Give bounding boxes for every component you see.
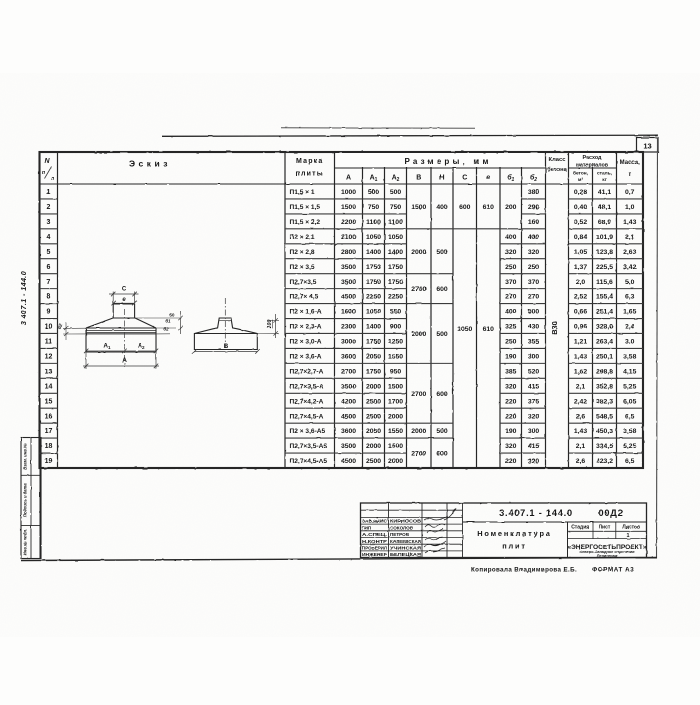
svg-text:160: 160	[528, 219, 540, 226]
svg-text:0,7: 0,7	[625, 189, 635, 196]
svg-text:3600: 3600	[341, 353, 356, 360]
svg-text:П2,7×3,5: П2,7×3,5	[290, 279, 317, 286]
svg-text:250: 250	[505, 264, 517, 271]
svg-text:610: 610	[483, 204, 495, 211]
svg-text:251,4: 251,4	[596, 309, 613, 316]
svg-text:2000: 2000	[411, 428, 426, 435]
svg-text:41,1: 41,1	[598, 189, 611, 196]
svg-text:500: 500	[436, 428, 448, 435]
svg-text:2,1: 2,1	[576, 443, 586, 450]
svg-text:2,42: 2,42	[574, 398, 587, 405]
svg-text:0,40: 0,40	[574, 204, 587, 211]
svg-text:1,05: 1,05	[574, 249, 587, 256]
svg-text:1: 1	[47, 189, 51, 196]
svg-text:П1,5 × 2,2: П1,5 × 2,2	[290, 219, 321, 226]
svg-text:2800: 2800	[341, 249, 356, 256]
svg-text:2000: 2000	[366, 383, 381, 390]
svg-text:3500: 3500	[341, 279, 356, 286]
svg-text:1,0: 1,0	[625, 204, 635, 211]
svg-text:1,43: 1,43	[574, 353, 587, 360]
svg-text:СОКОЛОВ: СОКОЛОВ	[390, 525, 414, 530]
svg-text:В30: В30	[550, 321, 559, 335]
svg-text:ПРОВЕРИЛ: ПРОВЕРИЛ	[362, 546, 387, 551]
svg-text:610: 610	[483, 326, 495, 333]
svg-text:П2 × 3,0-А: П2 × 3,0-А	[290, 339, 322, 346]
svg-text:548,5: 548,5	[596, 413, 613, 420]
svg-text:3,0: 3,0	[625, 339, 635, 346]
svg-text:123,8: 123,8	[596, 249, 613, 256]
svg-text:Н: Н	[439, 175, 444, 182]
svg-text:7: 7	[47, 279, 51, 286]
svg-text:500: 500	[436, 331, 448, 338]
svg-text:2300: 2300	[341, 324, 356, 331]
svg-text:Н.КОНТР: Н.КОНТР	[362, 539, 387, 544]
svg-text:6: 6	[47, 264, 51, 271]
svg-text:320: 320	[528, 249, 540, 256]
svg-text:400: 400	[505, 309, 517, 316]
svg-text:2,0: 2,0	[576, 279, 586, 286]
svg-text:1550: 1550	[388, 428, 403, 435]
svg-text:БЕЛЕЦКАЯ: БЕЛЕЦКАЯ	[390, 552, 421, 557]
svg-text:В: В	[416, 175, 421, 182]
svg-text:400: 400	[505, 234, 517, 241]
svg-text:155,4: 155,4	[596, 294, 613, 301]
svg-text:250: 250	[528, 264, 540, 271]
svg-text:16: 16	[45, 413, 53, 420]
svg-text:сталь,: сталь,	[597, 172, 613, 177]
svg-text:750: 750	[368, 204, 380, 211]
svg-text:1400: 1400	[366, 249, 381, 256]
svg-text:С: С	[122, 287, 127, 293]
svg-text:900: 900	[390, 324, 402, 331]
svg-text:Номенклатура: Номенклатура	[477, 529, 551, 538]
svg-text:2050: 2050	[366, 353, 381, 360]
svg-text:плит: плит	[502, 542, 527, 551]
svg-text:Расход: Расход	[583, 155, 603, 161]
svg-text:1050: 1050	[457, 326, 472, 333]
svg-text:1550: 1550	[388, 353, 403, 360]
svg-text:500: 500	[436, 249, 448, 256]
svg-text:300: 300	[528, 428, 540, 435]
svg-text:1,37: 1,37	[574, 264, 587, 271]
svg-text:6,5: 6,5	[625, 413, 635, 420]
svg-text:1500: 1500	[388, 443, 403, 450]
svg-text:П2,7×4,5-А: П2,7×4,5-А	[290, 413, 324, 420]
svg-text:300: 300	[528, 353, 540, 360]
svg-text:320: 320	[505, 443, 517, 450]
svg-text:500: 500	[390, 189, 402, 196]
svg-text:Класс: Класс	[549, 157, 567, 163]
svg-text:А: А	[122, 357, 127, 364]
svg-text:320: 320	[528, 458, 540, 465]
svg-text:2,63: 2,63	[623, 249, 636, 256]
svg-text:352,8: 352,8	[596, 383, 613, 390]
svg-text:320: 320	[505, 383, 517, 390]
svg-text:115,6: 115,6	[596, 279, 613, 286]
svg-text:2000: 2000	[388, 458, 403, 465]
svg-text:2500: 2500	[366, 458, 381, 465]
svg-text:П2,7×3,5-А5: П2,7×3,5-А5	[290, 443, 328, 450]
svg-text:0,84: 0,84	[574, 234, 587, 241]
svg-text:1050: 1050	[388, 234, 403, 241]
svg-text:1,62: 1,62	[574, 368, 587, 375]
svg-text:ПЕТРОВ: ПЕТРОВ	[390, 532, 410, 537]
svg-text:1250: 1250	[388, 339, 403, 346]
svg-text:ГИП: ГИП	[362, 525, 371, 530]
svg-text:1,43: 1,43	[574, 428, 587, 435]
svg-text:0,96: 0,96	[574, 324, 587, 331]
svg-text:Марка: Марка	[296, 158, 323, 165]
svg-text:1100: 1100	[388, 219, 403, 226]
svg-text:250: 250	[505, 339, 517, 346]
svg-text:1500: 1500	[388, 383, 403, 390]
svg-text:50: 50	[170, 313, 175, 318]
svg-text:ИНЖЕНЕР: ИНЖЕНЕР	[362, 552, 387, 557]
svg-text:0,28: 0,28	[574, 189, 587, 196]
svg-text:3,58: 3,58	[623, 428, 636, 435]
svg-text:430: 430	[528, 324, 540, 331]
svg-text:382,3: 382,3	[596, 398, 613, 405]
svg-text:1500: 1500	[341, 204, 356, 211]
svg-text:2,1: 2,1	[625, 234, 635, 241]
svg-text:С: С	[462, 175, 467, 182]
svg-text:Размеры, мм: Размеры, мм	[404, 157, 491, 166]
svg-text:1400: 1400	[366, 324, 381, 331]
svg-text:3,42: 3,42	[623, 264, 636, 271]
svg-text:П1,5 × 1,5: П1,5 × 1,5	[290, 204, 321, 211]
svg-text:2500: 2500	[366, 413, 381, 420]
svg-text:600: 600	[436, 391, 448, 398]
svg-text:П2 × 1,6-А: П2 × 1,6-А	[290, 309, 322, 316]
svg-text:3500: 3500	[341, 264, 356, 271]
svg-text:Подпись и дата: Подпись и дата	[23, 483, 28, 518]
svg-text:1750: 1750	[388, 279, 403, 286]
svg-text:1750: 1750	[388, 264, 403, 271]
svg-text:600: 600	[436, 451, 448, 458]
svg-text:550: 550	[390, 309, 402, 316]
svg-text:220: 220	[505, 413, 517, 420]
svg-text:320: 320	[505, 249, 517, 256]
svg-text:6,3: 6,3	[625, 294, 635, 301]
svg-text:263,4: 263,4	[596, 339, 613, 346]
svg-text:б1: б1	[165, 319, 171, 324]
svg-text:3,58: 3,58	[623, 353, 636, 360]
svg-text:2700: 2700	[411, 286, 426, 293]
svg-text:П2,7× 4,5: П2,7× 4,5	[290, 294, 319, 301]
svg-text:П2,7×4,2-А: П2,7×4,2-А	[290, 398, 324, 405]
svg-text:415: 415	[528, 443, 540, 450]
svg-text:2700: 2700	[341, 368, 356, 375]
svg-text:П2 × 3,5: П2 × 3,5	[290, 264, 315, 271]
svg-text:0,66: 0,66	[574, 309, 587, 316]
svg-text:1750: 1750	[366, 264, 381, 271]
svg-text:2200: 2200	[341, 219, 356, 226]
svg-text:П2 × 3,6-А5: П2 × 3,6-А5	[290, 428, 326, 435]
svg-text:Копировала Владимирова Е.Б.: Копировала Владимирова Е.Б.	[471, 567, 577, 574]
svg-text:270: 270	[528, 294, 540, 301]
svg-text:3600: 3600	[341, 428, 356, 435]
svg-text:бетона: бетона	[547, 166, 568, 173]
svg-text:12: 12	[45, 353, 53, 360]
svg-text:Инв.№ подл.: Инв.№ подл.	[23, 529, 28, 556]
svg-text:т: т	[628, 172, 631, 178]
svg-text:950: 950	[390, 368, 402, 375]
svg-text:Взам. инв.№: Взам. инв.№	[23, 443, 28, 470]
svg-text:КИРНОСОВ: КИРНОСОВ	[390, 519, 422, 524]
svg-text:190: 190	[505, 353, 517, 360]
svg-text:2000: 2000	[411, 331, 426, 338]
svg-text:1050: 1050	[366, 234, 381, 241]
svg-text:Лист: Лист	[598, 525, 610, 531]
svg-text:520: 520	[528, 368, 540, 375]
svg-text:375: 375	[528, 398, 540, 405]
svg-text:334,5: 334,5	[596, 443, 613, 450]
svg-text:П2,7×2,7-А: П2,7×2,7-А	[290, 368, 324, 375]
svg-text:4200: 4200	[341, 398, 356, 405]
svg-text:10: 10	[45, 324, 53, 331]
svg-text:2700: 2700	[411, 391, 426, 398]
svg-text:м³: м³	[578, 177, 584, 183]
svg-text:68,9: 68,9	[598, 219, 611, 226]
svg-text:14: 14	[45, 383, 53, 390]
svg-text:2000: 2000	[366, 443, 381, 450]
svg-text:3500: 3500	[341, 383, 356, 390]
svg-text:4,15: 4,15	[623, 368, 636, 375]
svg-text:13: 13	[45, 368, 53, 375]
svg-text:ЗАВ.ННИС: ЗАВ.ННИС	[362, 519, 388, 524]
svg-text:200: 200	[505, 204, 517, 211]
svg-text:ФОРМАТ А3: ФОРМАТ А3	[592, 567, 634, 574]
svg-text:370: 370	[505, 279, 517, 286]
svg-text:500: 500	[368, 189, 380, 196]
svg-text:6,5: 6,5	[625, 458, 635, 465]
svg-text:17: 17	[45, 428, 53, 435]
svg-text:298,8: 298,8	[596, 368, 613, 375]
svg-text:8: 8	[47, 294, 51, 301]
svg-text:4: 4	[47, 234, 51, 241]
svg-text:220: 220	[505, 398, 517, 405]
svg-text:0,52: 0,52	[574, 219, 587, 226]
svg-text:А.СПЕЦ.: А.СПЕЦ.	[362, 532, 387, 537]
svg-text:2,52: 2,52	[574, 294, 587, 301]
svg-text:101,9: 101,9	[596, 234, 613, 241]
svg-text:1700: 1700	[388, 398, 403, 405]
svg-text:4500: 4500	[341, 413, 356, 420]
svg-text:5,25: 5,25	[623, 443, 636, 450]
svg-text:500: 500	[528, 309, 540, 316]
svg-text:бетон,: бетон,	[573, 170, 589, 177]
svg-text:6,05: 6,05	[623, 398, 636, 405]
svg-text:00Д2: 00Д2	[598, 508, 623, 518]
svg-text:1500: 1500	[411, 204, 426, 211]
svg-text:380: 380	[528, 189, 540, 196]
svg-text:2050: 2050	[366, 428, 381, 435]
svg-text:П2 × 3,6-А: П2 × 3,6-А	[290, 353, 322, 360]
svg-text:П2,7×4,5-А5: П2,7×4,5-А5	[290, 458, 328, 465]
svg-text:13: 13	[643, 141, 651, 150]
svg-text:1,43: 1,43	[623, 219, 636, 226]
svg-text:Ленинград: Ленинград	[597, 553, 618, 558]
svg-text:2250: 2250	[366, 294, 381, 301]
svg-text:9: 9	[47, 309, 51, 316]
svg-text:1,65: 1,65	[623, 309, 636, 316]
svg-text:1000: 1000	[341, 189, 356, 196]
svg-text:А: А	[346, 175, 351, 182]
svg-text:250,1: 250,1	[596, 353, 613, 360]
svg-text:П2 × 2,3-А: П2 × 2,3-А	[290, 324, 322, 331]
svg-text:3 407.1 - 144.0: 3 407.1 - 144.0	[19, 271, 28, 325]
svg-text:2100: 2100	[341, 234, 356, 241]
svg-text:П1,5 × 1: П1,5 × 1	[290, 189, 315, 196]
svg-text:355: 355	[528, 339, 540, 346]
svg-text:П2 × 2,8: П2 × 2,8	[290, 249, 315, 256]
svg-text:100: 100	[267, 320, 273, 329]
svg-text:750: 750	[390, 204, 402, 211]
svg-text:225,5: 225,5	[596, 264, 613, 271]
svg-text:600: 600	[459, 204, 471, 211]
svg-text:2500: 2500	[366, 398, 381, 405]
svg-text:423,2: 423,2	[596, 458, 613, 465]
svg-text:плиты: плиты	[296, 171, 324, 178]
svg-text:В: В	[224, 343, 229, 350]
svg-text:415: 415	[528, 383, 540, 390]
svg-text:УЧИНСКАЯ: УЧИНСКАЯ	[390, 546, 421, 551]
svg-text:290: 290	[528, 204, 540, 211]
svg-text:450,3: 450,3	[596, 428, 613, 435]
svg-text:5: 5	[47, 249, 51, 256]
svg-text:Масса,: Масса,	[620, 160, 640, 166]
svg-text:Листов: Листов	[622, 525, 640, 531]
svg-text:5,25: 5,25	[623, 383, 636, 390]
svg-text:КАПЕЕВСКАЯ: КАПЕЕВСКАЯ	[390, 539, 421, 544]
svg-text:1: 1	[627, 533, 630, 539]
svg-text:190: 190	[505, 428, 517, 435]
svg-text:1600: 1600	[341, 309, 356, 316]
svg-text:48,1: 48,1	[598, 204, 611, 211]
svg-text:1750: 1750	[366, 339, 381, 346]
svg-text:3000: 3000	[341, 339, 356, 346]
svg-text:3.407.1 - 144.0: 3.407.1 - 144.0	[499, 508, 573, 518]
svg-text:320: 320	[528, 413, 540, 420]
svg-text:б2: б2	[163, 327, 169, 332]
svg-text:370: 370	[528, 279, 540, 286]
svg-text:15: 15	[45, 398, 53, 405]
svg-text:385: 385	[505, 368, 517, 375]
svg-text:19: 19	[45, 458, 53, 465]
svg-text:325: 325	[505, 324, 517, 331]
svg-text:4500: 4500	[341, 458, 356, 465]
svg-text:Стадия: Стадия	[571, 525, 589, 531]
svg-text:2,4: 2,4	[625, 324, 635, 331]
svg-text:П2,7×3,5-А: П2,7×3,5-А	[290, 383, 324, 390]
svg-text:400: 400	[436, 204, 448, 211]
svg-text:3500: 3500	[341, 443, 356, 450]
svg-text:220: 220	[505, 458, 517, 465]
svg-text:328,0: 328,0	[596, 324, 613, 331]
svg-text:1050: 1050	[366, 309, 381, 316]
svg-text:Эскиз: Эскиз	[129, 159, 171, 169]
svg-text:600: 600	[436, 286, 448, 293]
svg-text:2: 2	[47, 204, 51, 211]
svg-text:11: 11	[45, 339, 53, 346]
svg-text:2700: 2700	[411, 451, 426, 458]
svg-text:2,6: 2,6	[576, 458, 586, 465]
svg-text:18: 18	[45, 443, 53, 450]
svg-text:материалов: материалов	[576, 163, 609, 169]
svg-text:П2 × 2,1: П2 × 2,1	[290, 234, 315, 241]
svg-text:5,0: 5,0	[625, 279, 635, 286]
svg-text:3: 3	[47, 219, 51, 226]
svg-text:2000: 2000	[388, 413, 403, 420]
svg-text:2250: 2250	[388, 294, 403, 301]
svg-text:2000: 2000	[411, 249, 426, 256]
svg-text:400: 400	[528, 234, 540, 241]
svg-text:1400: 1400	[388, 249, 403, 256]
svg-text:е: е	[486, 175, 490, 182]
svg-text:2,6: 2,6	[576, 413, 586, 420]
svg-text:1750: 1750	[366, 368, 381, 375]
svg-text:2,1: 2,1	[576, 383, 586, 390]
svg-text:270: 270	[505, 294, 517, 301]
svg-text:кг: кг	[602, 178, 606, 183]
svg-text:1100: 1100	[366, 219, 381, 226]
svg-text:1750: 1750	[366, 279, 381, 286]
svg-text:1,21: 1,21	[574, 339, 587, 346]
svg-text:4500: 4500	[341, 294, 356, 301]
